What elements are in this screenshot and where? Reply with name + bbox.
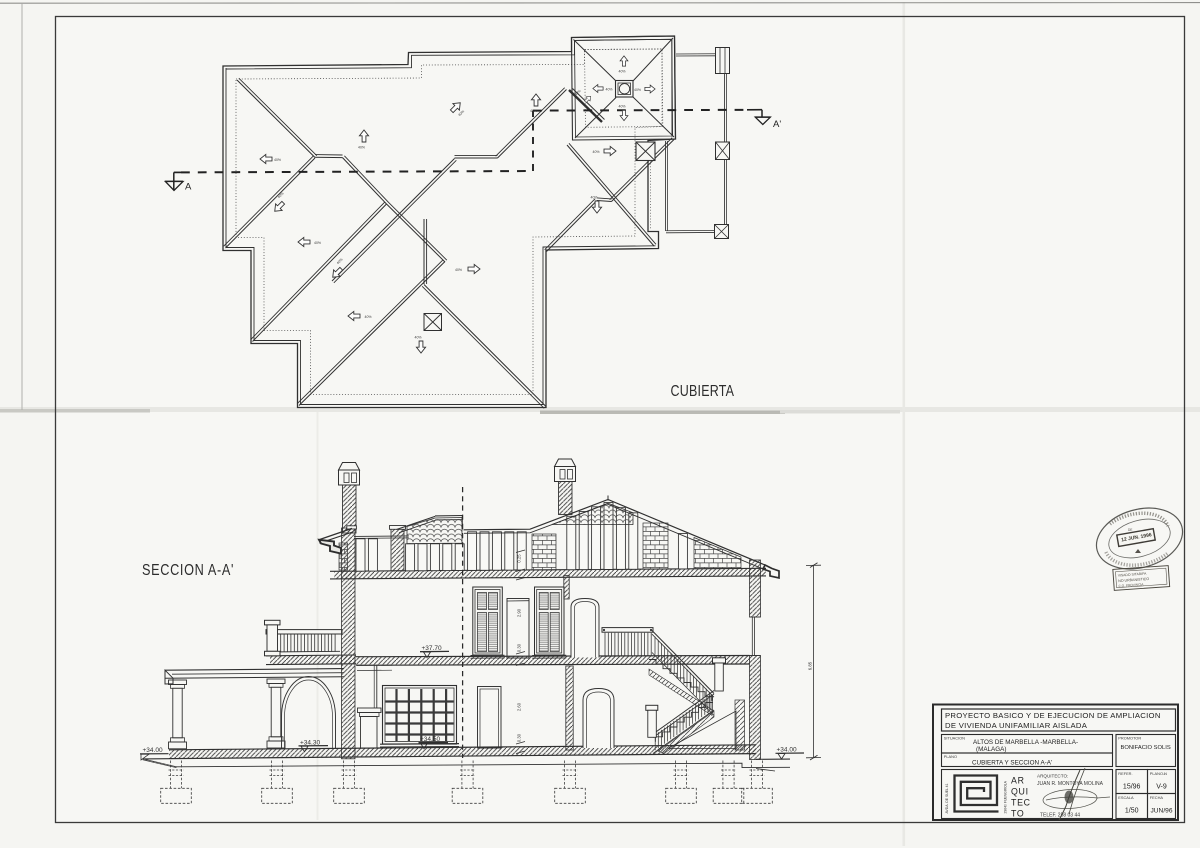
svg-text:15/96: 15/96	[1123, 784, 1141, 791]
svg-text:TO: TO	[1011, 809, 1024, 819]
svg-text:2.60: 2.60	[517, 702, 522, 711]
svg-text:JUAN R. MONTOYA MOLINA: JUAN R. MONTOYA MOLINA	[1037, 781, 1104, 787]
svg-text:(MALAGA): (MALAGA)	[976, 746, 1006, 753]
svg-text:40%: 40%	[455, 268, 462, 272]
svg-text:SITUACION: SITUACION	[944, 736, 965, 741]
svg-text:PROYECTO BASICO Y DE EJECUCION: PROYECTO BASICO Y DE EJECUCION DE AMPLIA…	[945, 711, 1161, 720]
svg-text:TEC: TEC	[1011, 798, 1031, 808]
svg-text:A': A'	[773, 119, 781, 130]
svg-text:FECHA: FECHA	[1150, 795, 1164, 800]
svg-text:DE VIVIENDA UNIFAMILIAR AISLAD: DE VIVIENDA UNIFAMILIAR AISLADA	[945, 721, 1088, 730]
svg-text:A: A	[185, 182, 192, 193]
svg-text:2.90: 2.90	[517, 608, 522, 617]
svg-text:29640 FUENGIROLA: 29640 FUENGIROLA	[1004, 780, 1008, 813]
svg-text:ARQUITECTO:: ARQUITECTO:	[1037, 774, 1068, 779]
svg-text:40%: 40%	[274, 158, 281, 162]
svg-text:ALTOS DE MARBELLA -MARBELLA-: ALTOS DE MARBELLA -MARBELLA-	[973, 739, 1078, 746]
svg-text:0.30: 0.30	[517, 643, 522, 652]
svg-text:PROMOTOR: PROMOTOR	[1118, 736, 1141, 741]
svg-text:PLANO: PLANO	[944, 754, 957, 759]
svg-text:40%: 40%	[619, 70, 626, 74]
svg-text:QUI: QUI	[1011, 787, 1029, 797]
svg-text:40%: 40%	[619, 105, 626, 109]
svg-text:40%: 40%	[591, 196, 598, 200]
svg-text:BONIFACIO SOLIS: BONIFACIO SOLIS	[1121, 745, 1171, 751]
svg-text:40%: 40%	[634, 88, 641, 92]
svg-text:CUBIERTA Y SECCION A-A': CUBIERTA Y SECCION A-A'	[972, 760, 1052, 767]
svg-text:1/50: 1/50	[1125, 808, 1139, 815]
svg-text:CUBIERTA: CUBIERTA	[671, 383, 735, 401]
svg-text:V-9: V-9	[1156, 784, 1167, 791]
svg-text:SECCION A-A': SECCION A-A'	[142, 562, 234, 579]
svg-text:40%: 40%	[358, 146, 365, 150]
svg-text:40%: 40%	[365, 315, 372, 319]
svg-text:40%: 40%	[415, 336, 422, 340]
svg-text:ESCALA: ESCALA	[1118, 795, 1134, 800]
svg-text:AVDA. DE SUEL 41: AVDA. DE SUEL 41	[945, 783, 949, 813]
svg-text:40%: 40%	[593, 150, 600, 154]
svg-text:0.30: 0.30	[517, 733, 522, 742]
svg-text:REFER.: REFER.	[1118, 771, 1132, 776]
svg-text:40%: 40%	[530, 109, 537, 113]
svg-text:40%: 40%	[606, 87, 613, 91]
svg-text:JUN/96: JUN/96	[1151, 808, 1173, 815]
svg-text:+34.00: +34.00	[143, 747, 163, 754]
svg-text:6.85: 6.85	[808, 661, 813, 670]
svg-text:AR: AR	[1011, 776, 1025, 786]
svg-text:40%: 40%	[314, 241, 321, 245]
svg-text:0.25: 0.25	[517, 554, 522, 563]
